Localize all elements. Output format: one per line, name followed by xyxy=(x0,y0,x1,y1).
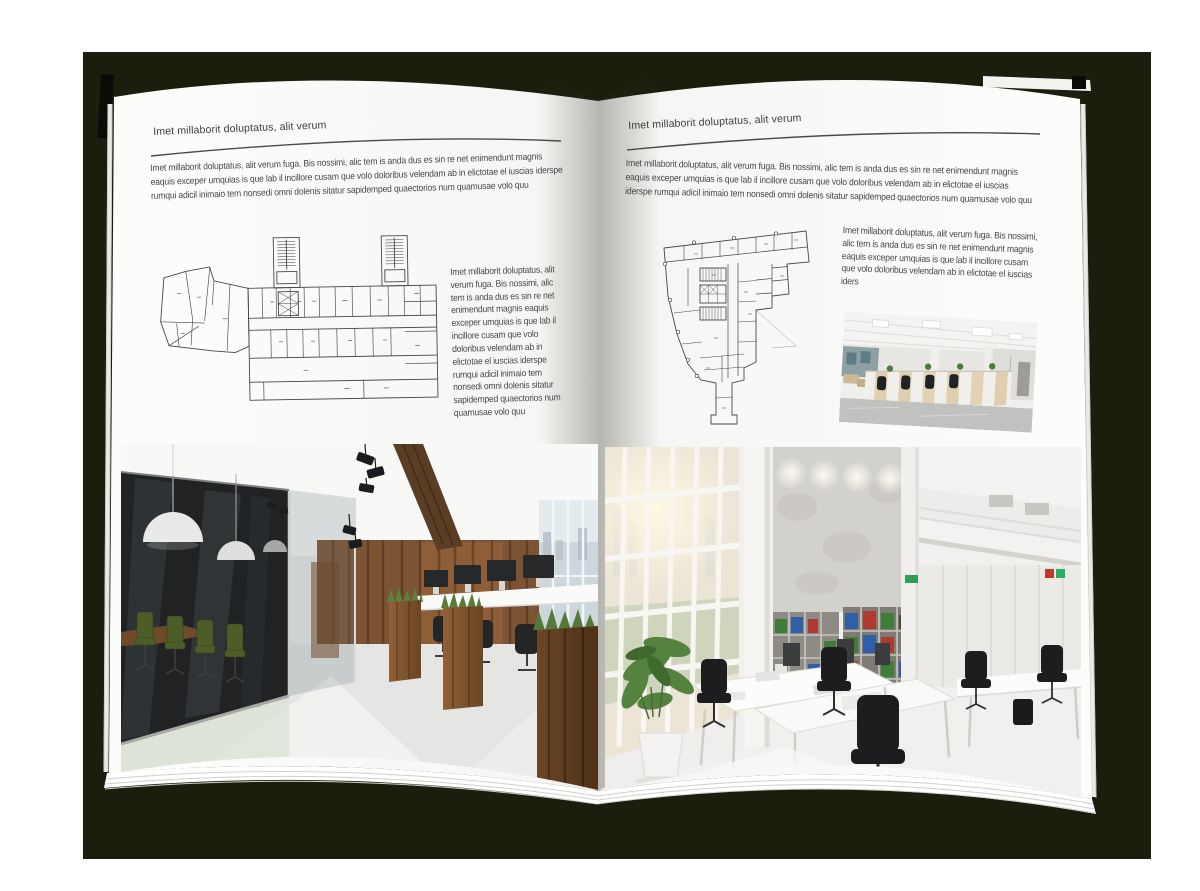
magazine-spread-mockup: Imet millaborit doluptatus, alit verum I… xyxy=(0,0,1200,891)
left-page-floor-plan xyxy=(151,223,450,416)
right-page-floor-plan xyxy=(644,218,842,426)
concrete-wall xyxy=(773,447,913,612)
lounge-sofa xyxy=(843,374,859,384)
waste-bin xyxy=(1013,699,1033,725)
right-page-side-text: Imet millaborit doluptatus, alit verum f… xyxy=(841,224,1042,295)
right-page-photo xyxy=(605,447,1081,799)
exit-sign xyxy=(905,575,918,583)
left-page-photo xyxy=(121,444,598,790)
left-page-side-text: Imet millaborit doluptatus, alit verum f… xyxy=(450,263,570,420)
right-page-small-photo xyxy=(839,312,1038,433)
